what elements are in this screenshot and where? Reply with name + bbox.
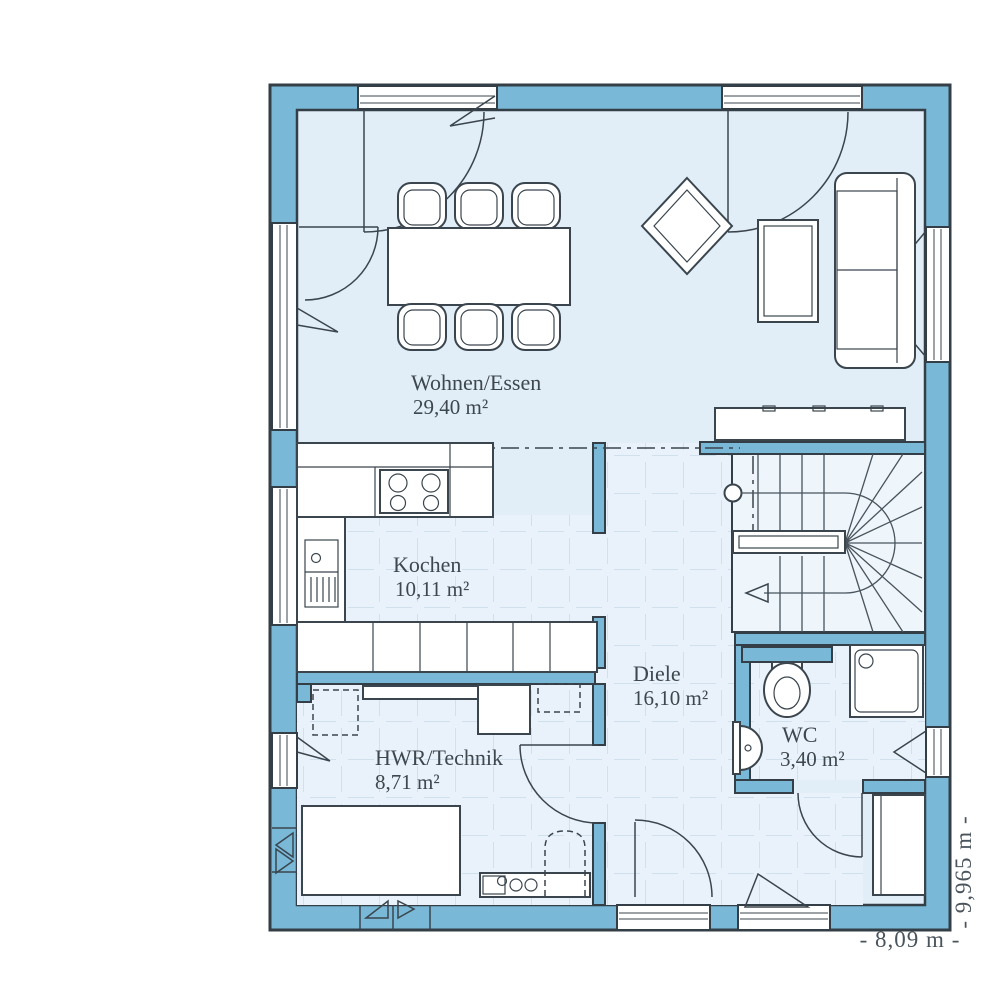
coffee-table xyxy=(758,220,818,322)
dining-chair xyxy=(512,304,560,350)
room-label-wohnen-area: 29,40 m² xyxy=(413,395,488,419)
wall-kochen-hwr xyxy=(297,672,595,684)
stove-icon xyxy=(380,470,448,513)
room-label-wc-name: WC xyxy=(782,722,817,747)
stair-newel-post xyxy=(725,485,742,502)
wall-stair-top xyxy=(700,442,925,454)
dining-chair xyxy=(398,304,446,350)
wall-stub-a xyxy=(593,443,605,533)
room-label-hwr-name: HWR/Technik xyxy=(375,745,503,770)
room-label-diele-area: 16,10 m² xyxy=(633,686,708,710)
dimension-height-label: - 9,965 m - xyxy=(951,815,976,928)
wall-wc-top xyxy=(735,633,925,645)
stair-handrail xyxy=(733,531,845,553)
dining-chair xyxy=(455,304,503,350)
wall-hwr-diele-lower xyxy=(593,823,605,905)
room-label-hwr-area: 8,71 m² xyxy=(375,770,440,794)
dimension-width-label: - 8,09 m - xyxy=(860,927,961,952)
sideboard xyxy=(715,406,905,440)
wall-hwr-corner xyxy=(297,684,311,702)
floor-plan: Wohnen/Essen 29,40 m² Kochen 10,11 m² Di… xyxy=(0,0,1000,1000)
room-label-wc-area: 3,40 m² xyxy=(780,747,845,771)
floor-kochen xyxy=(345,515,593,622)
shower-icon xyxy=(850,645,923,717)
dining-table xyxy=(388,228,570,305)
room-label-kochen-area: 10,11 m² xyxy=(395,577,469,601)
toilet-icon xyxy=(764,662,810,717)
toilet-cistern-ledge xyxy=(742,647,832,662)
heat-pump-unit xyxy=(302,806,460,895)
floor-diele-south xyxy=(735,793,863,905)
sofa xyxy=(835,173,915,368)
dining-set xyxy=(388,183,570,350)
room-label-wohnen-name: Wohnen/Essen xyxy=(411,370,541,395)
wall-hwr-diele-upper xyxy=(593,684,605,745)
wardrobe-cabinet xyxy=(873,795,925,895)
kitchen-island xyxy=(297,622,597,672)
utility-appliance xyxy=(478,685,530,734)
wall-wc-bottom-right xyxy=(863,780,925,793)
storage-shelf xyxy=(363,686,478,699)
dining-chair xyxy=(512,183,560,229)
dining-chair xyxy=(455,183,503,229)
wall-wc-bottom-left xyxy=(735,780,793,793)
room-label-diele-name: Diele xyxy=(633,661,681,686)
dining-chair xyxy=(398,183,446,229)
floor-plan-page: Wohnen/Essen 29,40 m² Kochen 10,11 m² Di… xyxy=(0,0,1000,1000)
room-label-kochen-name: Kochen xyxy=(393,552,461,577)
utility-sink xyxy=(480,873,590,897)
